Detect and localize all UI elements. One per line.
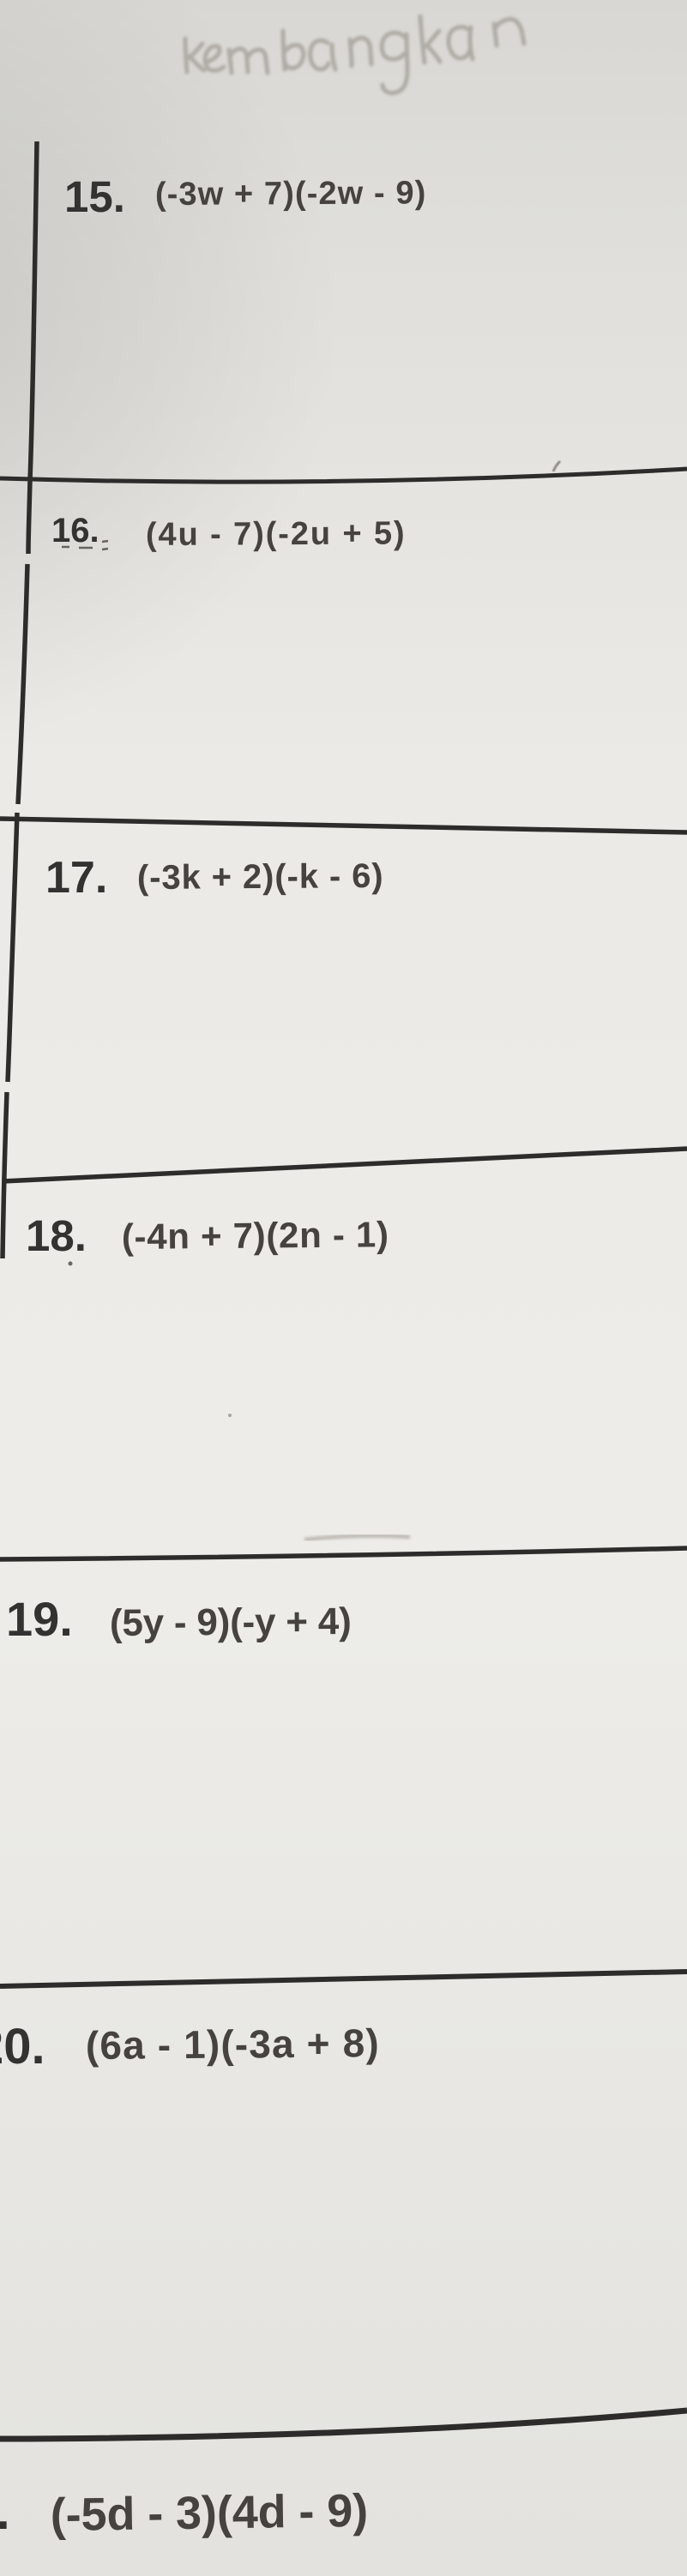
svg-text:(4u - 7)(-2u + 5): (4u - 7)(-2u + 5) — [146, 515, 407, 553]
svg-text:15.: 15. — [64, 172, 125, 221]
svg-text:(-4n + 7)(2n - 1): (-4n + 7)(2n - 1) — [122, 1214, 389, 1257]
svg-text:16.: 16. — [51, 512, 99, 549]
svg-text:20.: 20. — [0, 2019, 45, 2075]
svg-text:(5y - 9)(-y + 4): (5y - 9)(-y + 4) — [110, 1600, 352, 1644]
svg-text:19.: 19. — [6, 1592, 73, 1646]
svg-text:(-5d - 3)(4d - 9): (-5d - 3)(4d - 9) — [50, 2485, 368, 2541]
svg-text:21.: 21. — [0, 2484, 10, 2540]
svg-text:18.: 18. — [26, 1211, 87, 1260]
svg-text:(-3k + 2)(-k - 6): (-3k + 2)(-k - 6) — [137, 857, 384, 897]
svg-text:(6a - 1)(-3a + 8): (6a - 1)(-3a + 8) — [86, 2021, 380, 2068]
svg-text:17.: 17. — [45, 853, 107, 903]
svg-text:(-3w + 7)(-2w - 9): (-3w + 7)(-2w - 9) — [155, 175, 427, 213]
